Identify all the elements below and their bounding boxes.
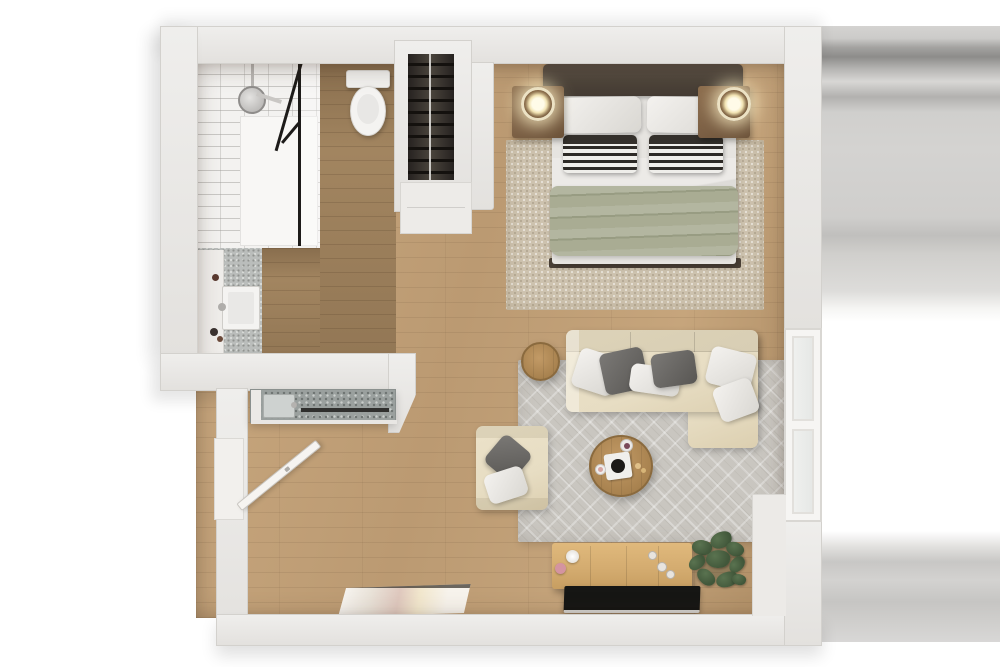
toilet-seat-inner <box>357 94 379 124</box>
decor-jar-2 <box>657 562 667 572</box>
wall-right-lower <box>784 520 822 646</box>
kitchen-counter-end-cap <box>251 390 261 422</box>
window-sill-block <box>752 494 786 616</box>
kitchen-faucet <box>291 402 297 408</box>
window-pane-lower <box>792 429 814 514</box>
sofa-pillow-gray-2 <box>650 349 698 389</box>
kitchen-appliance-slot <box>301 408 389 412</box>
closet-shelf <box>400 182 472 234</box>
leaning-artwork <box>338 584 472 617</box>
wall-bathroom-bottom <box>160 353 416 391</box>
cup-center <box>598 467 603 472</box>
decor-jar-1 <box>648 551 657 560</box>
wall-top <box>160 26 822 64</box>
closet-shelf-seam <box>407 207 465 208</box>
bathroom-wood-floor-2 <box>262 248 320 354</box>
shower-head <box>238 86 266 114</box>
kitchen-counter-lip <box>251 420 397 424</box>
wall-right-upper <box>784 26 822 330</box>
sofa-seam-2 <box>694 332 695 352</box>
door-handle <box>284 466 290 472</box>
vanity-sink-bowl <box>228 292 254 324</box>
lamp-right <box>717 87 751 121</box>
vanity-bottle-3 <box>217 336 223 342</box>
wall-bottom <box>216 614 822 646</box>
sideboard-seam-2 <box>626 546 627 586</box>
window-pane-upper <box>792 336 814 421</box>
decor-white-bloom <box>566 550 579 563</box>
vanity-bottle-2 <box>210 328 218 336</box>
shower-glass-frame <box>298 60 301 246</box>
right-gradient-band <box>818 26 1000 642</box>
coffee-table <box>589 435 653 497</box>
tv-screen <box>564 586 701 613</box>
window-frame <box>784 328 822 522</box>
plate-center <box>624 443 630 449</box>
bed-pillow-striped-right <box>649 135 723 173</box>
lamp-left <box>521 87 555 121</box>
armchair-arm-top <box>476 426 548 438</box>
armchair-arm-bottom <box>476 498 548 510</box>
shower-glass-pane <box>298 60 320 246</box>
record-disc <box>611 459 625 473</box>
wall-left-upper <box>160 26 198 356</box>
sideboard-seam-1 <box>590 546 591 586</box>
bed-duvet-green <box>550 186 738 256</box>
cookie-2 <box>641 468 646 473</box>
side-table <box>521 342 560 381</box>
kitchen-counter <box>250 389 396 423</box>
decor-pink-vase <box>555 563 566 574</box>
vanity-faucet <box>218 303 226 311</box>
potted-plant <box>686 530 750 594</box>
vanity-bottle-1 <box>212 274 219 281</box>
bed-pillow-striped-left <box>563 135 637 173</box>
closet-cavity-hangers <box>408 54 454 180</box>
decor-jar-3 <box>666 570 675 579</box>
bed-pillow-white-left <box>557 96 642 133</box>
floor-plan-scene <box>0 0 1000 667</box>
cookie-1 <box>635 463 641 469</box>
